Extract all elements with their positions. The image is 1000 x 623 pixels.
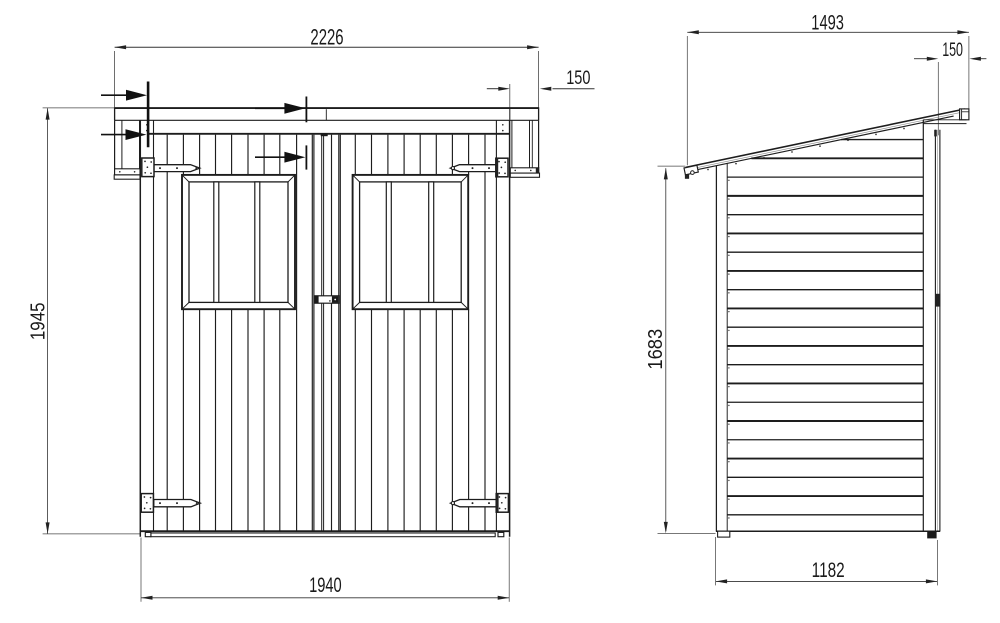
svg-text:1683: 1683 [645,329,667,370]
svg-text:150: 150 [566,66,590,89]
svg-text:1940: 1940 [309,574,342,597]
svg-text:150: 150 [942,39,963,60]
svg-text:2226: 2226 [310,26,343,51]
svg-text:1493: 1493 [811,10,844,35]
svg-text:1182: 1182 [812,557,845,581]
svg-text:1945: 1945 [26,303,49,341]
